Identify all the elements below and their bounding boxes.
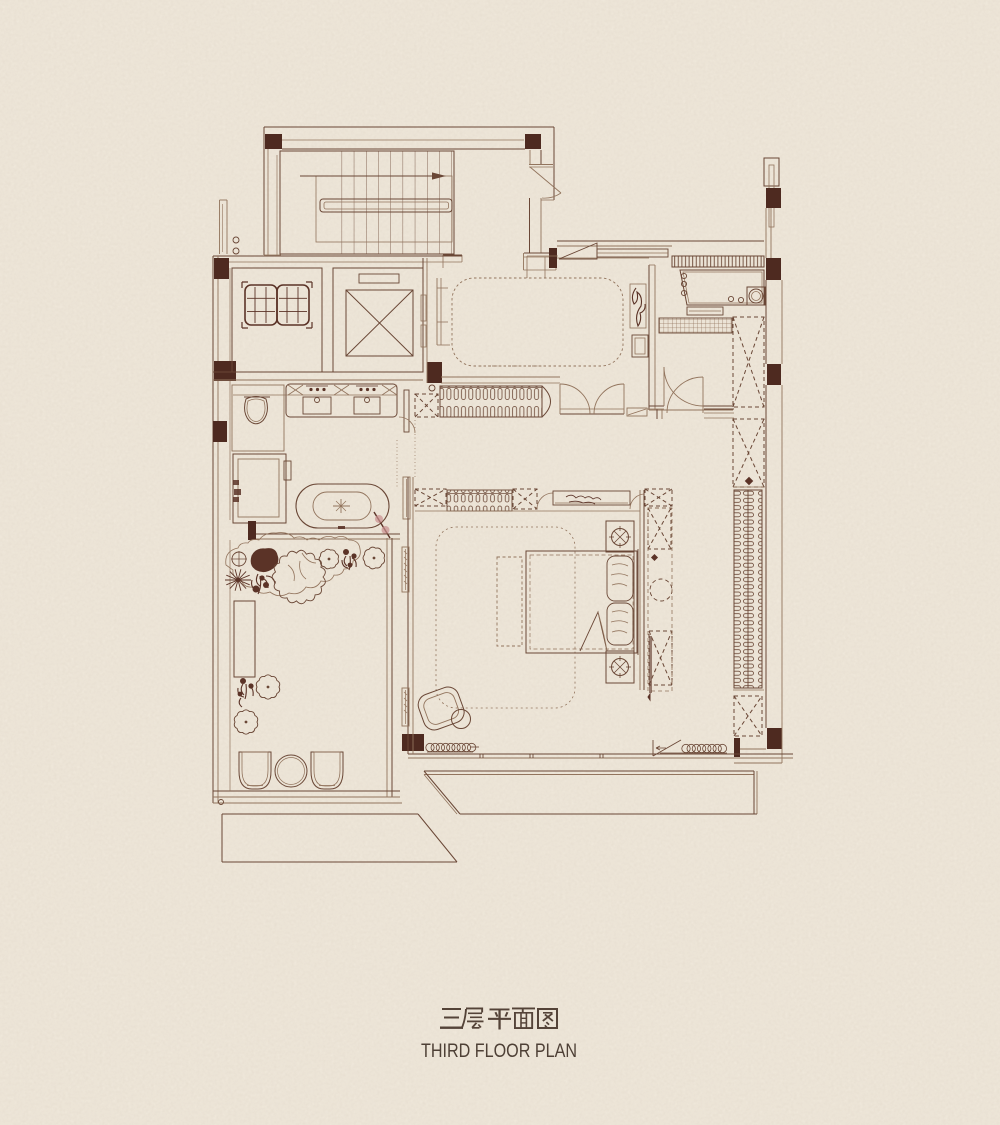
svg-text:THIRD FLOOR PLAN: THIRD FLOOR PLAN <box>421 1040 577 1062</box>
